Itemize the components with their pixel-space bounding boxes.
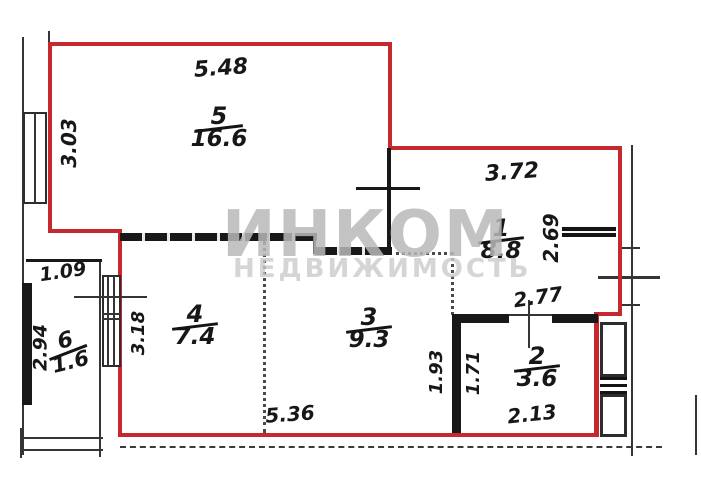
red-wall-room5-right	[388, 42, 392, 150]
balcony-glazing-bottom-line	[20, 449, 103, 451]
dim-room5-width: 5.48	[185, 56, 256, 83]
wall-room5-room3	[315, 247, 392, 255]
window-balcony-mullion-2	[113, 276, 115, 366]
room-label-3: 3 9.3	[340, 305, 398, 352]
room-label-4: 4 7.4	[166, 302, 224, 349]
building-edge-bottom	[120, 446, 662, 448]
dim-room6-width: 1.09	[33, 259, 93, 286]
red-wall-right	[618, 146, 622, 316]
shaft-upper-box	[600, 322, 627, 377]
balcony-glazing-top-line	[20, 437, 103, 439]
dim-room1-width: 3.72	[477, 160, 546, 187]
dimension-tick-balcony	[74, 296, 147, 298]
wall-room1-door-bar	[562, 226, 616, 237]
dim-room3-height: 1.93	[428, 339, 446, 405]
window-balcony-divider-2	[102, 318, 121, 320]
red-wall-room5-bottom-left	[48, 229, 122, 233]
dim-room2-height: 1.71	[465, 340, 483, 406]
window-balcony-mullion-1	[107, 276, 109, 366]
red-wall-room2-right	[594, 312, 599, 437]
shaft-hatch-band	[600, 377, 627, 394]
red-wall-jog	[596, 312, 622, 316]
dim-room3-width: 5.36	[257, 402, 322, 426]
building-edge-right	[631, 145, 633, 456]
wall-balcony-right	[99, 259, 101, 457]
red-wall-top	[48, 42, 392, 46]
wall-room2-top-right	[552, 314, 598, 323]
dim-room2-top: 2.77	[505, 283, 571, 312]
building-edge-far-right	[695, 395, 697, 455]
red-wall-room1-top	[388, 146, 622, 150]
dim-room1-height: 2.69	[541, 205, 561, 271]
room-label-2: 2 3.6	[508, 344, 566, 391]
survey-cross-bar	[356, 187, 420, 190]
wall-room5-room4	[120, 233, 317, 241]
red-wall-bottom	[118, 433, 599, 437]
dim-room2-bottom: 2.13	[499, 401, 565, 428]
watermark-subtitle: НЕДВИЖИМОСТЬ	[233, 254, 473, 284]
partition-room3-top	[396, 252, 453, 255]
window-balcony-block	[102, 275, 121, 367]
floor-plan: 5.48 3.03 3.72 2.69 2.77 2.13 1.71 1.93 …	[0, 0, 701, 495]
wall-room2-left	[452, 314, 461, 433]
balcony-glazing-left-cap	[20, 428, 22, 458]
partition-room3-room1	[451, 252, 454, 315]
room-label-5: 5 16.6	[190, 104, 248, 151]
window-balcony-divider-1	[102, 313, 121, 315]
dim-room4-height: 3.18	[130, 300, 148, 366]
window-room5-left-mullion	[34, 113, 36, 203]
wall-room5-room1	[387, 148, 391, 255]
door-room2-lintel	[509, 314, 552, 316]
shaft-lower-box	[600, 394, 627, 437]
red-wall-room5-left	[48, 42, 52, 233]
room-label-1: 1 8.8	[472, 216, 530, 263]
dim-room5-height: 3.03	[59, 110, 79, 176]
dimension-line-right	[598, 276, 660, 279]
